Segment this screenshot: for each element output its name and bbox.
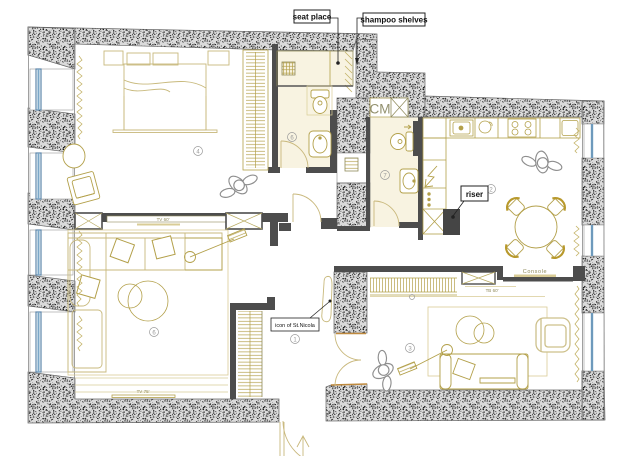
svg-text:seat place: seat place — [293, 13, 332, 22]
svg-text:TB 60': TB 60' — [486, 288, 499, 293]
svg-text:icon of St.Nicola: icon of St.Nicola — [275, 323, 316, 329]
svg-text:TV 75': TV 75' — [137, 389, 150, 394]
svg-text:Console: Console — [523, 269, 547, 275]
svg-text:shampoo shelves: shampoo shelves — [360, 16, 428, 25]
svg-text:CM: CM — [370, 102, 391, 117]
svg-text:TV 60': TV 60' — [157, 217, 170, 222]
svg-text:riser: riser — [466, 190, 483, 199]
